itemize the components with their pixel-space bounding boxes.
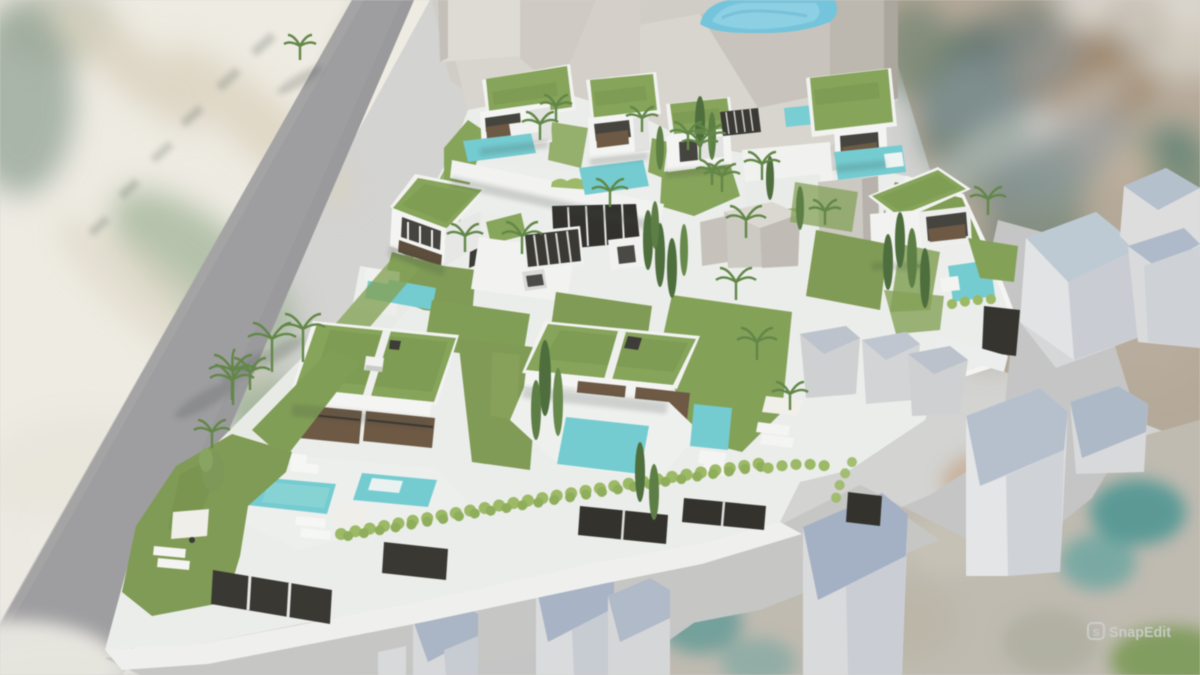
svg-text:SnapEdit: SnapEdit: [1109, 625, 1171, 641]
svg-text:S: S: [1092, 627, 1099, 639]
